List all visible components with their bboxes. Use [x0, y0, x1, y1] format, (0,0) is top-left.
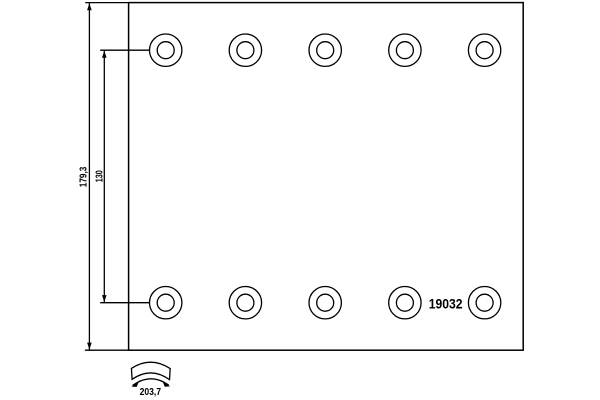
svg-text:179,3: 179,3	[79, 166, 90, 187]
svg-text:130: 130	[95, 170, 106, 182]
svg-text:203,7: 203,7	[140, 387, 162, 398]
svg-text:19032: 19032	[429, 296, 463, 312]
